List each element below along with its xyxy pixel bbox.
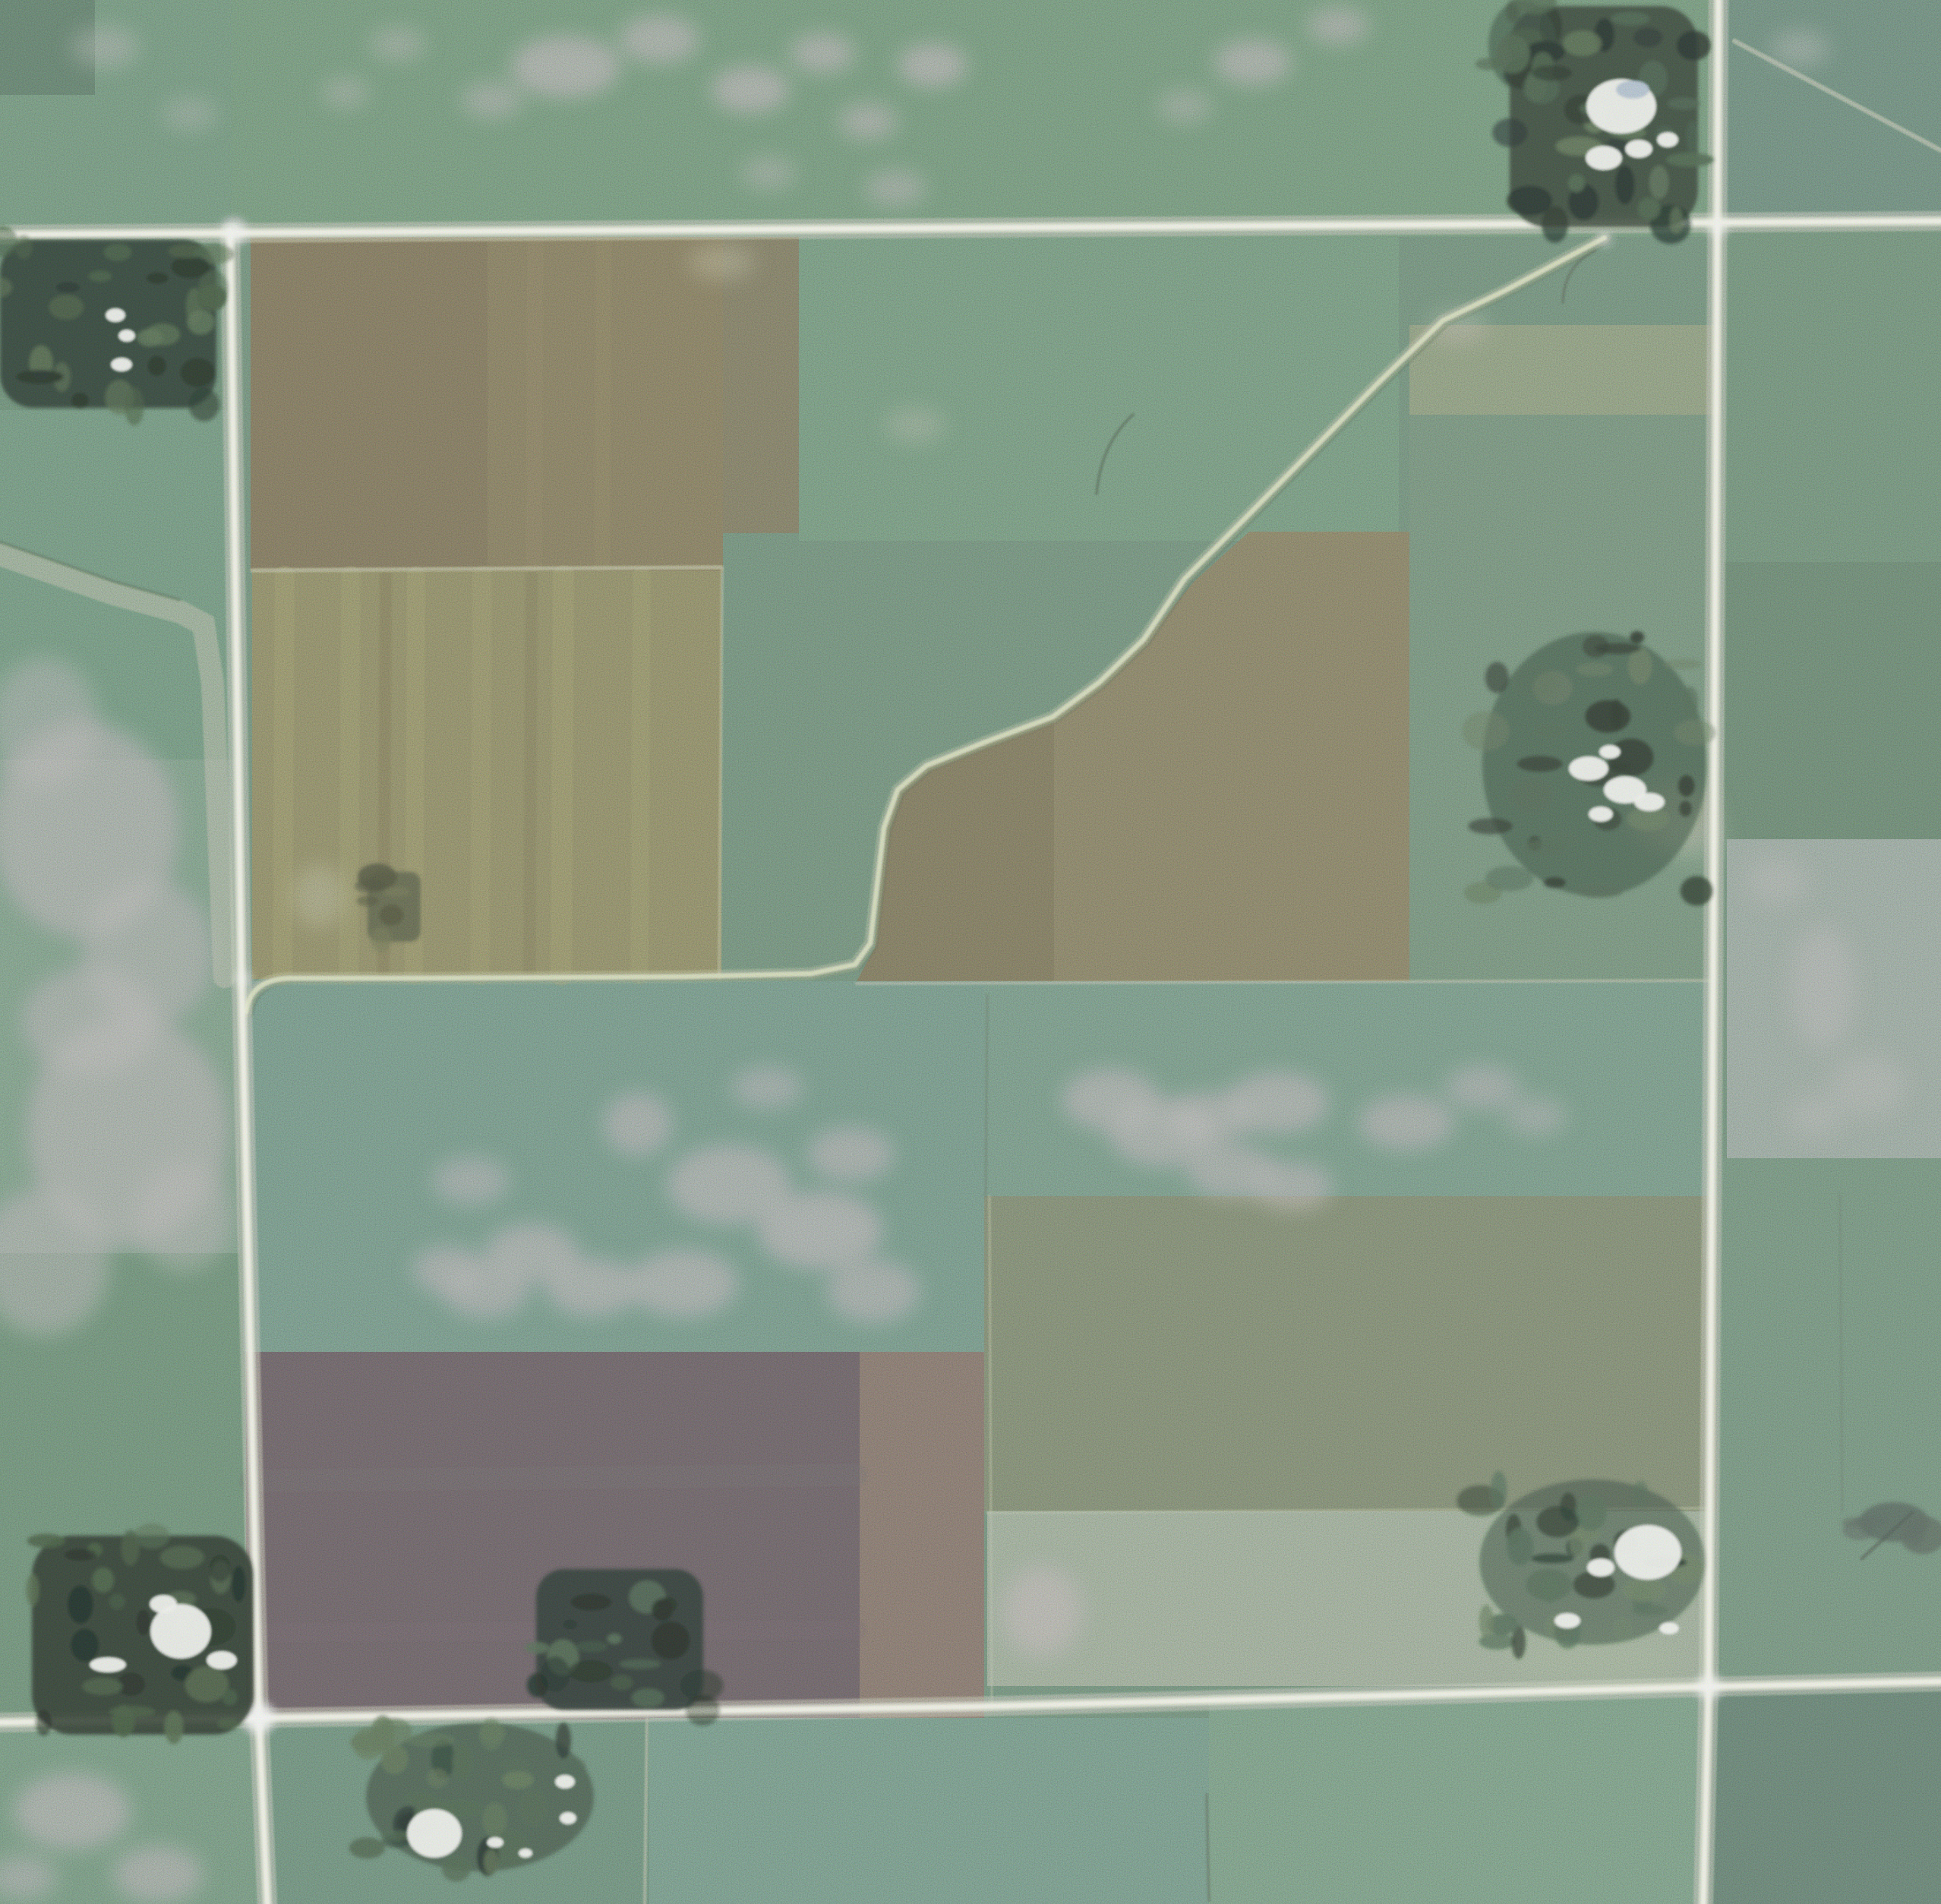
aerial-photo-canvas bbox=[0, 0, 1941, 1904]
haze-overlay bbox=[0, 0, 1941, 1904]
aerial-photo-farmland bbox=[0, 0, 1941, 1904]
